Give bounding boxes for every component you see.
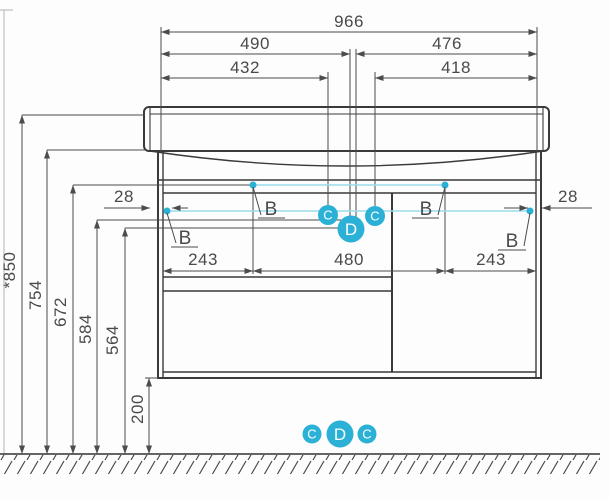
dim-480-label: 480 bbox=[334, 250, 364, 269]
c-label-bottom-right: C bbox=[362, 427, 371, 442]
b-label-right-outer: B bbox=[506, 231, 519, 252]
floor-hatch bbox=[0, 455, 600, 474]
basin-countertop bbox=[144, 107, 549, 166]
dim-28-left-label: 28 bbox=[114, 187, 134, 206]
dim-200-label: 200 bbox=[128, 394, 147, 424]
dim-432-label: 432 bbox=[230, 58, 260, 77]
dim-672-label: 672 bbox=[51, 297, 70, 327]
dim-490-label: 490 bbox=[240, 34, 270, 53]
c-label-mid-left: C bbox=[323, 208, 332, 223]
dim-28-right-label: 28 bbox=[558, 187, 578, 206]
bottom-callout-circles: C C D bbox=[303, 421, 377, 448]
basin-front-curve bbox=[150, 151, 543, 166]
dim-564-label: 564 bbox=[103, 325, 122, 355]
b-label-left-inner: B bbox=[265, 199, 278, 220]
dim-850-label: *850 bbox=[0, 252, 19, 289]
dim-243-right-label: 243 bbox=[476, 250, 506, 269]
dim-754-label: 754 bbox=[26, 280, 45, 310]
d-label-bottom: D bbox=[334, 425, 346, 444]
vanity-dimension-drawing: B B B B C C D C C D 966 490 476 432 418 … bbox=[0, 0, 610, 500]
drawing-canvas: B B B B C C D C C D 966 490 476 432 418 … bbox=[0, 0, 610, 500]
wall-line bbox=[0, 10, 13, 454]
dim-966-label: 966 bbox=[334, 12, 364, 31]
dim-418-label: 418 bbox=[441, 58, 471, 77]
fixing-lines bbox=[164, 182, 534, 215]
b-label-right-inner: B bbox=[420, 199, 433, 220]
d-label-mid: D bbox=[345, 220, 357, 239]
dimension-labels: 966 490 476 432 418 243 480 243 28 28 *8… bbox=[0, 12, 578, 424]
dim-243-left-label: 243 bbox=[188, 250, 218, 269]
countertop-edge-lines bbox=[150, 107, 543, 151]
dim-584-label: 584 bbox=[76, 314, 95, 344]
extension-lines bbox=[22, 27, 537, 378]
c-label-mid-right: C bbox=[370, 209, 379, 224]
dim-476-label: 476 bbox=[432, 34, 462, 53]
c-label-bottom-left: C bbox=[307, 427, 316, 442]
b-label-left-outer: B bbox=[179, 228, 192, 249]
